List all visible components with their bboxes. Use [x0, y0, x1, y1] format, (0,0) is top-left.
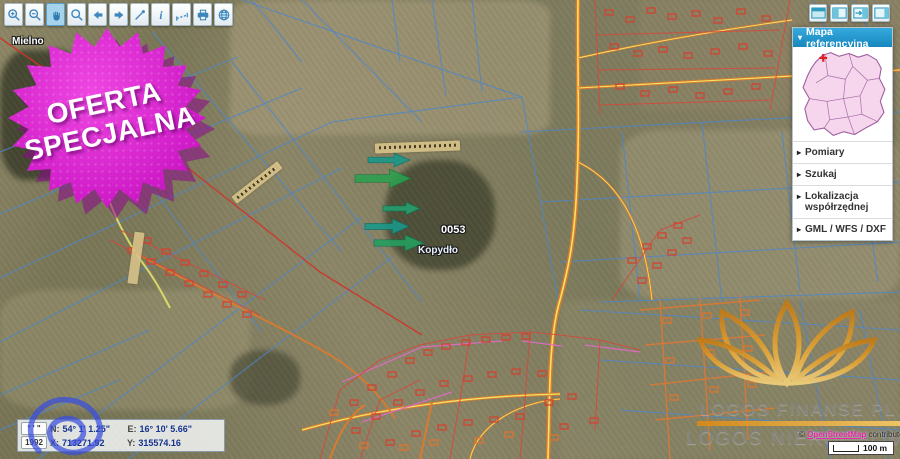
measure-button[interactable] [172, 3, 191, 26]
map-attribution: © OpenStreetMap contributors [799, 430, 900, 439]
arrow-right-icon [112, 8, 126, 22]
y-value: 315574.16 [138, 438, 181, 448]
previous-view-button[interactable] [88, 3, 107, 26]
next-view-button[interactable] [109, 3, 128, 26]
osm-link[interactable]: OpenStreetMap [807, 430, 866, 439]
hand-icon [49, 8, 63, 22]
panel-toggles [809, 4, 890, 22]
sidebar-item-label: Pomiary [805, 147, 844, 158]
info-icon: i [154, 8, 168, 22]
print-button[interactable] [193, 3, 212, 26]
lon-label: E: [128, 424, 137, 434]
dock-left-button[interactable] [830, 4, 848, 22]
toolbar: i [4, 3, 233, 26]
poland-map-wrap [793, 47, 892, 141]
magnifier-icon [70, 8, 84, 22]
map-application: Mielno 0053 Kopydło OFERTA SPECJALNA [0, 0, 900, 459]
zoom-extent-button[interactable] [67, 3, 86, 26]
lotus-logo [690, 295, 885, 410]
panel-left-icon [832, 7, 847, 19]
sidebar-item-szukaj[interactable]: ▸ Szukaj [793, 163, 892, 185]
y-label: Y: [127, 438, 135, 448]
collapse-header-button[interactable] [809, 4, 827, 22]
chevron-right-icon: ▸ [797, 191, 801, 202]
lon-value: 16° 10' 5.66" [140, 424, 193, 434]
watermark-line1: LOGOS FINANSE PL & [700, 400, 900, 420]
chevron-down-icon: ▾ [798, 33, 802, 42]
direction-arrows [355, 153, 424, 251]
sidebar-item-lokalizacja[interactable]: ▸ Lokalizacja współrzędnej [793, 185, 892, 218]
printer-icon [196, 8, 210, 22]
dock-right-button[interactable] [872, 4, 890, 22]
basemap-button[interactable] [214, 3, 233, 26]
sidebar-item-label: Lokalizacja współrzędnej [805, 191, 877, 213]
village-label: Kopydło [418, 245, 458, 256]
chevron-right-icon: ▸ [797, 147, 801, 158]
window-top-icon [811, 7, 826, 19]
identify-button[interactable]: i [151, 3, 170, 26]
scale-bar-line [833, 445, 859, 452]
panel-arrow-right-icon [853, 7, 868, 19]
pan-button[interactable] [46, 3, 65, 26]
draw-button[interactable] [130, 3, 149, 26]
ruler-icon [175, 8, 189, 22]
pen-icon [133, 8, 147, 22]
scale-bar: 100 m [828, 441, 894, 455]
sidebar-item-label: GML / WFS / DXF [805, 224, 886, 235]
sidebar-item-label: Szukaj [805, 169, 837, 180]
chevron-right-icon: ▸ [797, 224, 801, 235]
svg-text:i: i [159, 9, 163, 21]
panel-right-icon [874, 7, 889, 19]
magnifier-plus-icon [7, 8, 21, 22]
reference-map-panel: ▾ Mapa referencyjna ▸ Pomiary ▸ [792, 27, 893, 241]
watermark-gold-bar [697, 421, 900, 426]
chevron-right-icon: ▸ [797, 169, 801, 180]
magnifier-minus-icon [28, 8, 42, 22]
sidebar-item-gml-wfs-dxf[interactable]: ▸ GML / WFS / DXF [793, 218, 892, 240]
attribution-suffix: contributors [866, 430, 900, 439]
poland-map[interactable] [796, 48, 891, 140]
globe-icon [217, 8, 231, 22]
panel-header[interactable]: ▾ Mapa referencyjna [793, 28, 892, 47]
scale-bar-label: 100 m [863, 443, 887, 453]
copyright-symbol: © [799, 430, 807, 439]
sidebar-item-pomiary[interactable]: ▸ Pomiary [793, 141, 892, 163]
town-label: Mielno [12, 36, 44, 47]
arrow-left-icon [91, 8, 105, 22]
loop-logo-watermark [25, 391, 117, 457]
move-panel-button[interactable] [851, 4, 869, 22]
parcel-number-label: 0053 [441, 224, 465, 236]
panel-title: Mapa referencyjna [806, 26, 887, 50]
zoom-in-button[interactable] [4, 3, 23, 26]
zoom-out-button[interactable] [25, 3, 44, 26]
